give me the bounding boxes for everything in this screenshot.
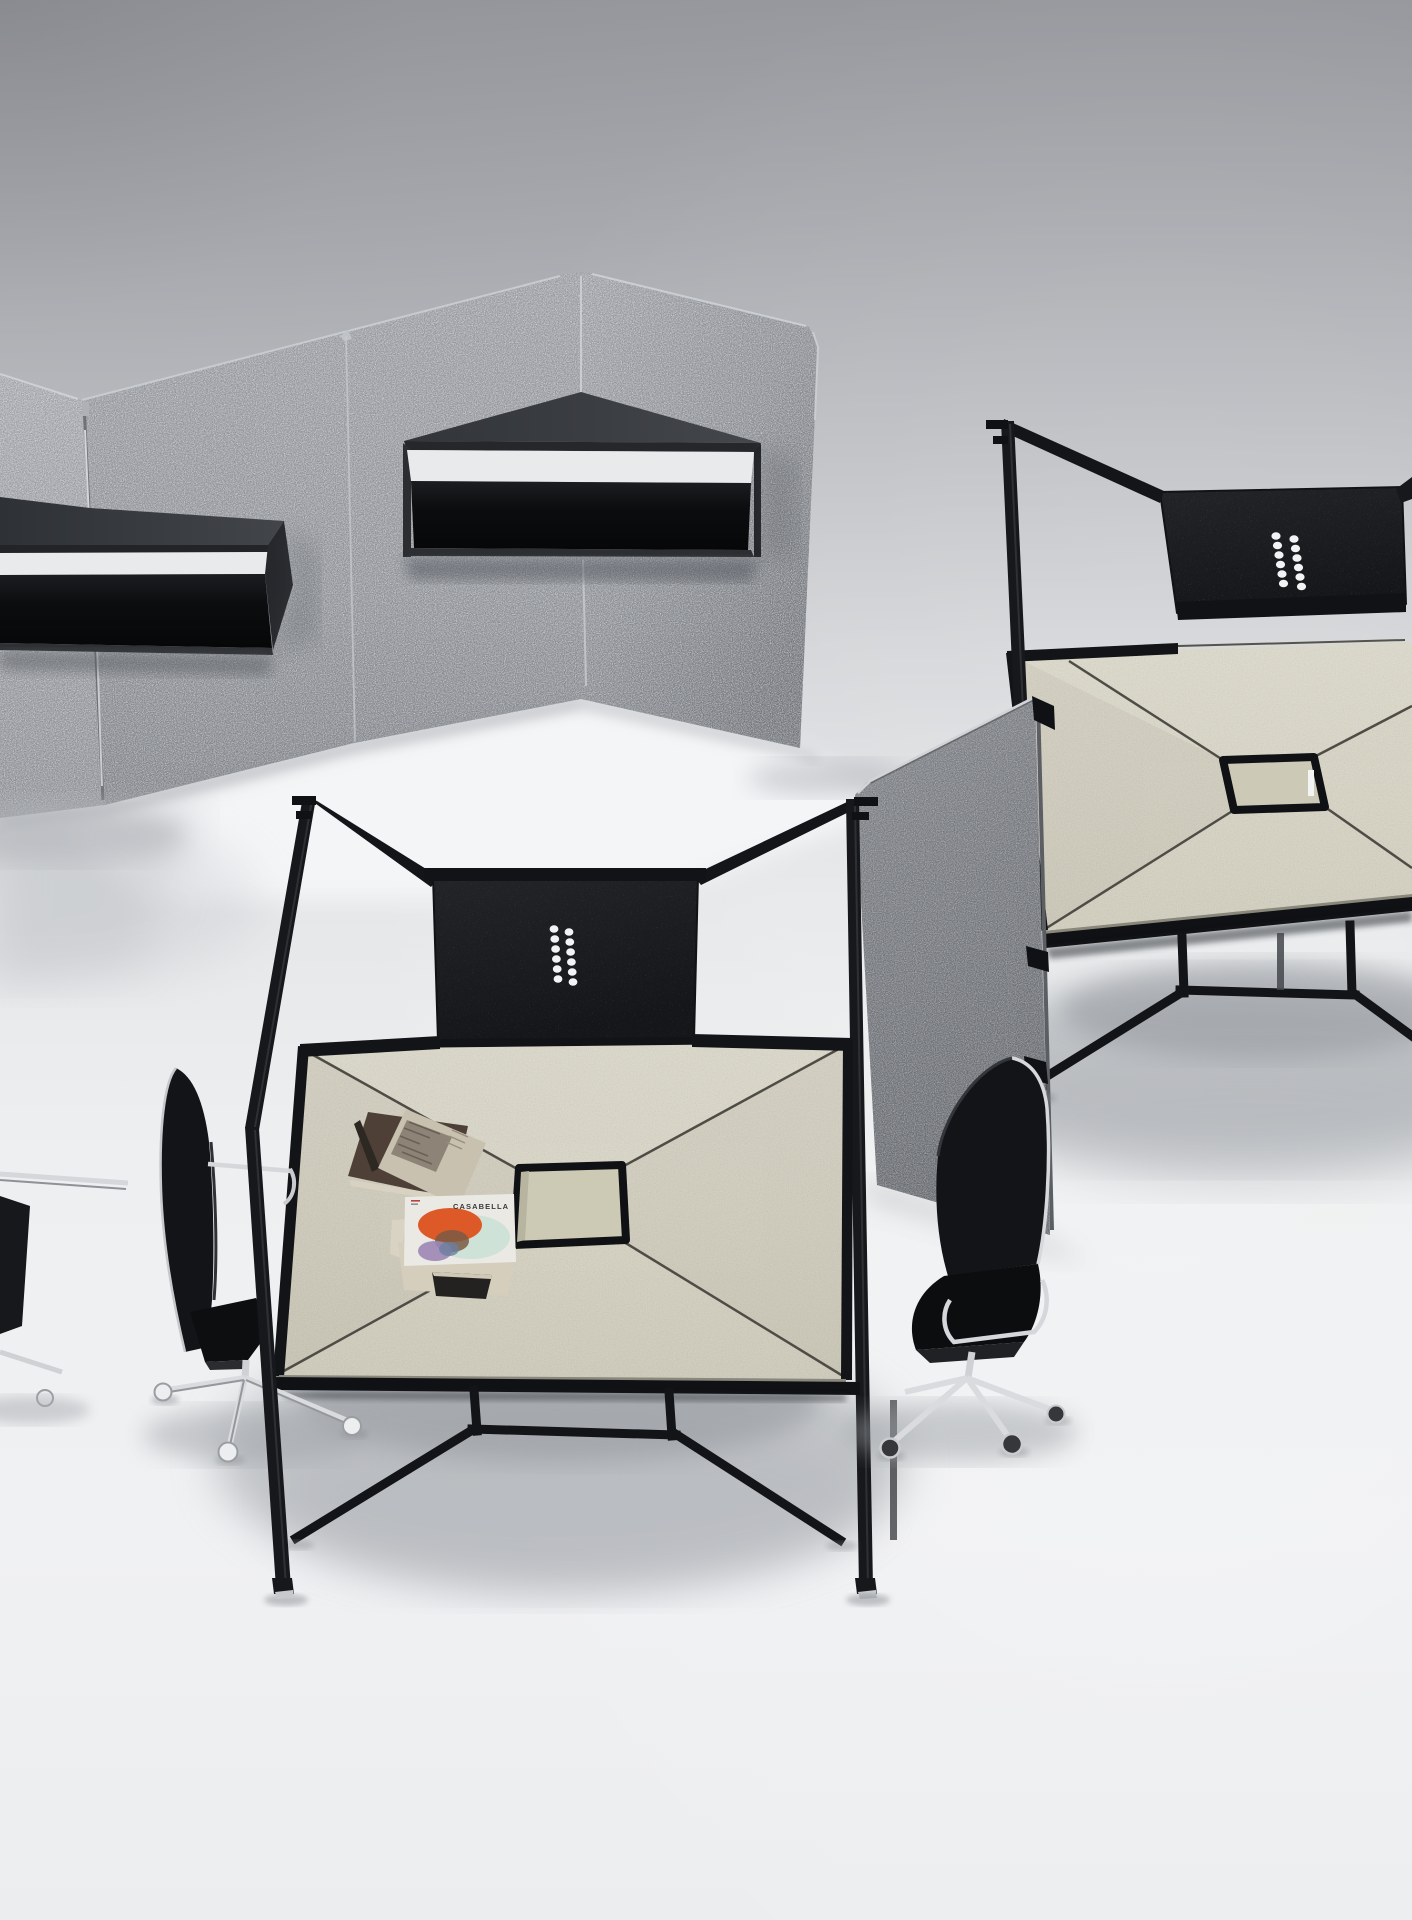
svg-text:CASABELLA: CASABELLA [453, 1202, 509, 1211]
